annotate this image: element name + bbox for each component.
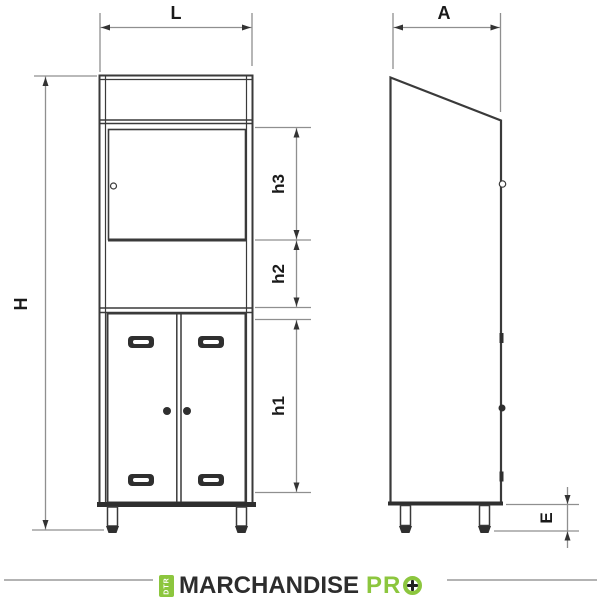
dimension-height-H: H bbox=[11, 76, 104, 530]
dimension-leg-E: E bbox=[494, 487, 579, 548]
dimension-h1: h1 bbox=[255, 320, 311, 493]
marchandise-pro-logo: DTR MARCHANDISE PR bbox=[159, 573, 422, 598]
side-lower-knob bbox=[499, 405, 506, 412]
footer-rule-left bbox=[4, 579, 153, 581]
side-view bbox=[388, 78, 506, 534]
dim-label-A: A bbox=[438, 3, 451, 23]
cabinet-dimension-diagram: L A H h3 bbox=[0, 0, 600, 600]
dim-label-L: L bbox=[171, 3, 182, 23]
dim-label-h2: h2 bbox=[269, 264, 288, 284]
dim-label-h1: h1 bbox=[269, 396, 288, 416]
front-legs bbox=[106, 507, 248, 533]
right-door-knob bbox=[183, 407, 191, 415]
side-legs bbox=[399, 506, 491, 534]
logo-badge: DTR bbox=[159, 575, 174, 597]
upper-door-lock bbox=[111, 183, 117, 189]
dim-label-H: H bbox=[11, 298, 31, 311]
front-base bbox=[97, 502, 256, 507]
logo-brand-text: MARCHANDISE bbox=[179, 574, 359, 598]
side-outline bbox=[391, 78, 502, 504]
front-view bbox=[97, 76, 256, 534]
side-hinge-top bbox=[500, 333, 504, 343]
left-door-knob bbox=[163, 407, 171, 415]
front-carcass bbox=[100, 76, 253, 504]
technical-drawing-page: L A H h3 bbox=[0, 0, 600, 600]
side-upper-knob bbox=[499, 181, 505, 187]
plus-icon-vertical-bar bbox=[411, 580, 414, 591]
dim-label-h3: h3 bbox=[269, 174, 288, 194]
dimension-width-L: L bbox=[100, 3, 252, 72]
plus-circle-icon bbox=[403, 576, 422, 595]
dimension-h3: h3 bbox=[255, 128, 311, 241]
side-hinge-bottom bbox=[500, 472, 504, 482]
dim-label-E: E bbox=[537, 512, 556, 523]
logo-suffix-text: PR bbox=[366, 574, 401, 598]
dimension-h2: h2 bbox=[255, 240, 311, 308]
logo-badge-text: DTR bbox=[163, 577, 170, 594]
footer-rule-right bbox=[447, 579, 597, 581]
